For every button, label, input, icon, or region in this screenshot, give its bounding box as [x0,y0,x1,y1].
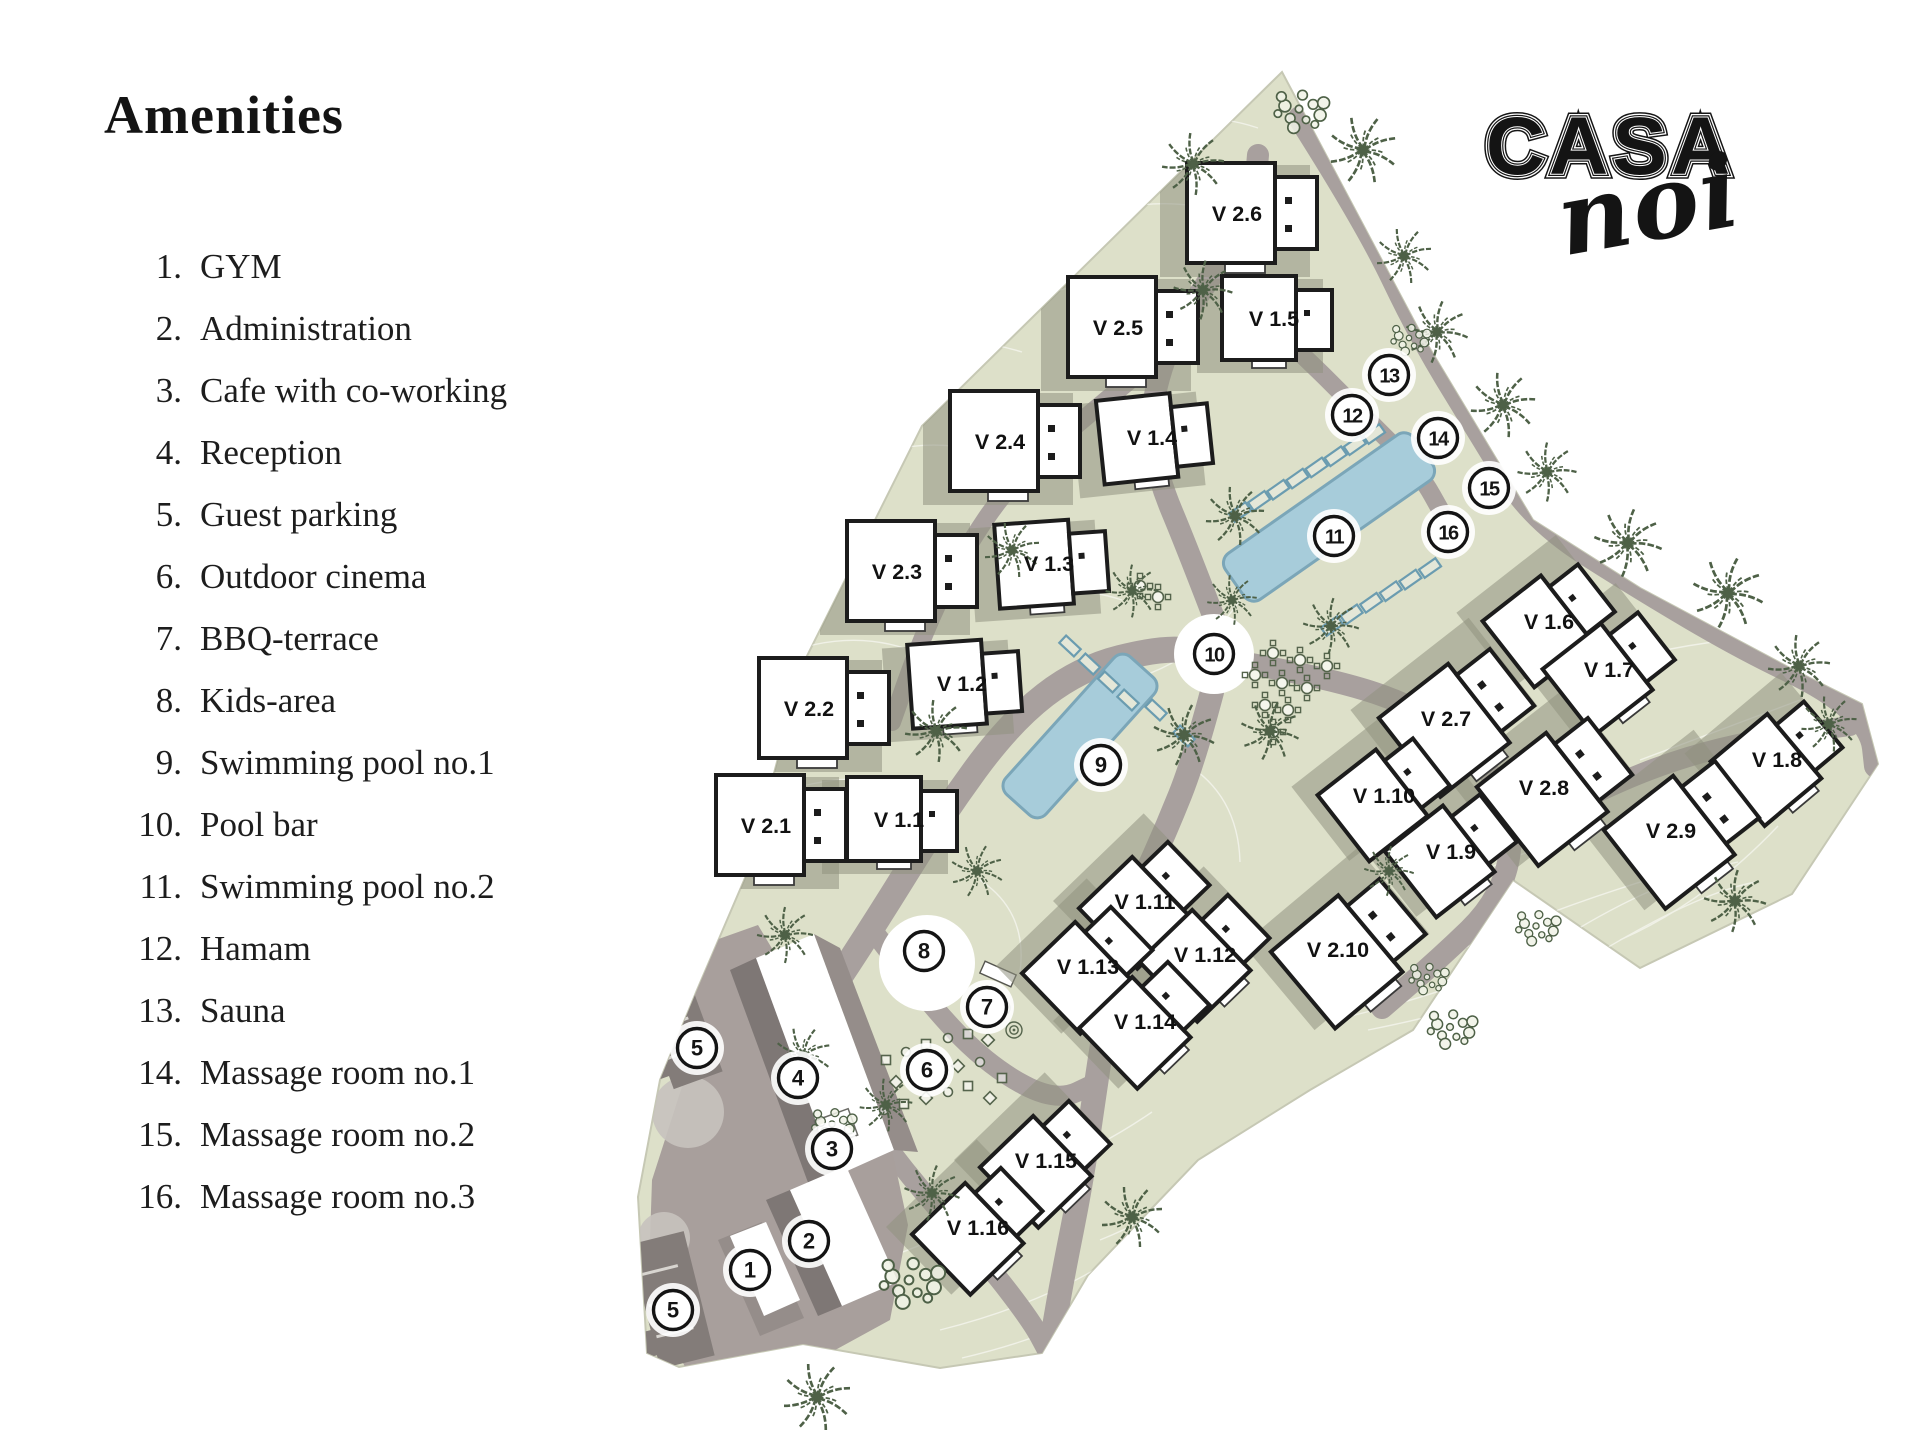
map-marker-4: 4 [771,1051,825,1105]
amenity-item: 1.GYM [104,236,664,298]
svg-text:1: 1 [744,1258,756,1283]
amenities-legend: Amenities 1.GYM2.Administration3.Cafe wi… [104,84,664,146]
amenity-number: 7. [104,608,182,670]
amenity-label: Administration [200,298,412,360]
amenity-number: 9. [104,732,182,794]
villa-label: V 2.7 [1421,707,1471,731]
villa-label: V 1.7 [1584,658,1634,682]
map-marker-15: 15 [1462,461,1516,515]
svg-text:10: 10 [1204,645,1225,667]
villa-label: V 1.1 [874,808,924,832]
villa-label: V 2.3 [872,560,922,584]
amenity-number: 16. [104,1166,182,1228]
amenity-label: Swimming pool no.2 [200,856,495,918]
svg-text:4: 4 [792,1066,805,1091]
amenity-number: 12. [104,918,182,980]
svg-text:3: 3 [826,1137,838,1162]
amenity-item: 10.Pool bar [104,794,664,856]
map-marker-11: 11 [1307,509,1361,563]
amenity-label: Reception [200,422,342,484]
svg-text:8: 8 [918,939,930,964]
amenity-number: 8. [104,670,182,732]
brand-logo: CASA CASA CASA CASA CASA noi [1452,62,1872,292]
amenity-item: 2.Administration [104,298,664,360]
svg-text:11: 11 [1325,527,1345,549]
amenity-label: Massage room no.3 [200,1166,475,1228]
amenity-item: 5.Guest parking [104,484,664,546]
bush-icon [1516,911,1561,946]
amenity-number: 14. [104,1042,182,1104]
amenity-item: 9.Swimming pool no.1 [104,732,664,794]
amenity-label: Outdoor cinema [200,546,426,608]
map-marker-14: 14 [1411,411,1465,465]
map-marker-9: 9 [1074,738,1128,792]
svg-text:9: 9 [1095,753,1107,778]
villa-label: V 1.8 [1752,748,1802,772]
map-marker-7: 7 [960,980,1014,1034]
palm-tree-icon [1512,437,1582,507]
map-marker-3: 3 [805,1122,859,1176]
villa-label: V 2.9 [1646,819,1696,843]
svg-text:7: 7 [981,995,993,1020]
svg-text:14: 14 [1428,429,1450,451]
amenity-item: 16.Massage room no.3 [104,1166,664,1228]
amenity-label: Kids-area [200,670,336,732]
map-marker-6: 6 [900,1043,954,1097]
svg-text:12: 12 [1342,406,1363,428]
svg-text:6: 6 [921,1058,933,1083]
amenity-item: 12.Hamam [104,918,664,980]
amenity-item: 4.Reception [104,422,664,484]
map-marker-16: 16 [1421,505,1475,559]
svg-text:5: 5 [691,1036,703,1061]
villa-label: V 1.4 [1127,426,1177,450]
amenity-label: Massage room no.2 [200,1104,475,1166]
amenity-number: 5. [104,484,182,546]
amenity-number: 11. [104,856,182,918]
amenity-number: 13. [104,980,182,1042]
villa-label: V 2.5 [1093,316,1143,340]
villa-label: V 1.10 [1353,784,1415,808]
villa-label: V 2.6 [1212,202,1262,226]
legend-title: Amenities [104,84,664,146]
amenity-number: 15. [104,1104,182,1166]
villa-label: V 2.4 [975,430,1025,454]
amenity-item: 8.Kids-area [104,670,664,732]
bush-icon [1427,1010,1477,1049]
villa-label: V 1.12 [1174,943,1236,967]
svg-text:15: 15 [1479,479,1500,501]
amenity-label: Cafe with co-working [200,360,507,422]
villa-label: V 1.3 [1024,552,1074,576]
amenity-number: 10. [104,794,182,856]
amenity-item: 13.Sauna [104,980,664,1042]
villa-label: V 2.1 [741,814,791,838]
map-marker-5: 5 [646,1283,700,1337]
amenity-number: 6. [104,546,182,608]
villa-label: V 1.13 [1057,955,1119,979]
amenity-label: GYM [200,236,282,298]
map-marker-12: 12 [1325,388,1379,442]
amenity-item: 14.Massage room no.1 [104,1042,664,1104]
map-marker-13: 13 [1362,348,1416,402]
villa-label: V 1.6 [1524,610,1574,634]
villa-label: V 1.9 [1426,840,1476,864]
amenity-list: 1.GYM2.Administration3.Cafe with co-work… [104,236,664,1228]
map-marker-1: 1 [723,1243,777,1297]
svg-text:16: 16 [1438,523,1459,545]
villa-label: V 1.11 [1115,890,1176,914]
amenity-number: 1. [104,236,182,298]
villa-label: V 1.16 [947,1216,1009,1240]
palm-tree-icon [784,1364,850,1430]
amenity-item: 6.Outdoor cinema [104,546,664,608]
svg-text:5: 5 [667,1298,679,1323]
villa-label: V 2.10 [1307,938,1369,962]
amenity-item: 3.Cafe with co-working [104,360,664,422]
amenity-label: BBQ-terrace [200,608,379,670]
villa-label: V 1.2 [937,672,987,696]
amenity-label: Massage room no.1 [200,1042,475,1104]
map-marker-10: 10 [1187,627,1241,681]
map-marker-8: 8 [897,924,951,978]
amenity-number: 3. [104,360,182,422]
svg-text:13: 13 [1379,366,1400,388]
amenity-label: Guest parking [200,484,397,546]
map-marker-5: 5 [670,1021,724,1075]
villa-label: V 2.8 [1519,776,1569,800]
map-marker-2: 2 [782,1214,836,1268]
villa-label: V 1.5 [1249,307,1299,331]
amenity-item: 7.BBQ-terrace [104,608,664,670]
amenity-item: 11.Swimming pool no.2 [104,856,664,918]
villa-label: V 1.14 [1114,1010,1176,1034]
page: 123455678910111213141516V 2.6V 2.5V 1.5V… [0,0,1920,1436]
amenity-label: Hamam [200,918,311,980]
amenity-label: Sauna [200,980,286,1042]
svg-text:2: 2 [803,1229,815,1254]
amenity-number: 4. [104,422,182,484]
villa-label: V 1.15 [1015,1149,1077,1173]
villa-label: V 2.2 [784,697,834,721]
amenity-label: Swimming pool no.1 [200,732,495,794]
amenity-number: 2. [104,298,182,360]
amenity-label: Pool bar [200,794,318,856]
amenity-item: 15.Massage room no.2 [104,1104,664,1166]
